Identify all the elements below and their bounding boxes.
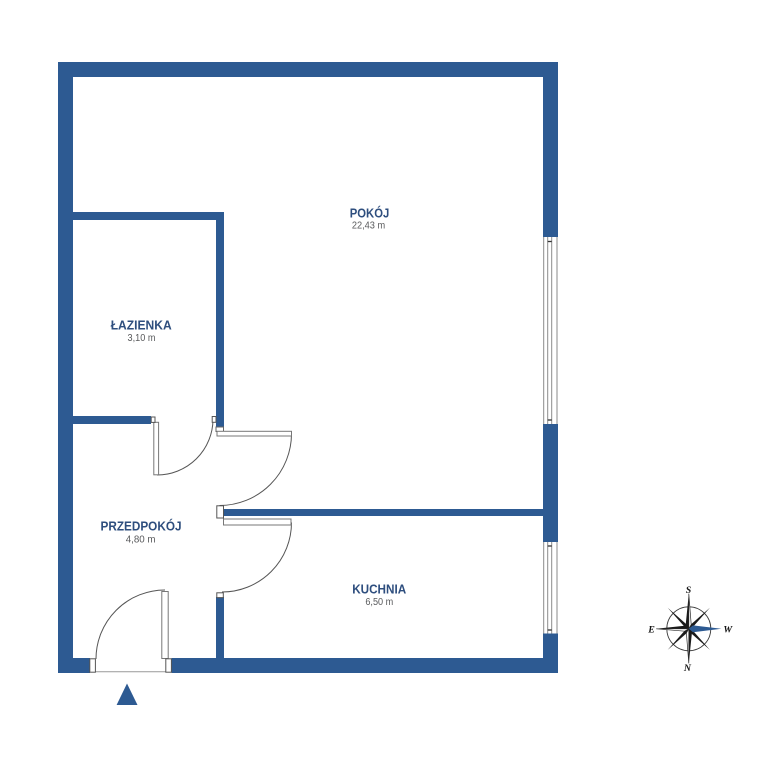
svg-text:N: N [683,663,692,674]
svg-text:POKÓJ: POKÓJ [350,206,390,221]
svg-text:3,10 m: 3,10 m [128,333,156,344]
svg-text:W: W [723,625,733,636]
svg-text:ŁAZIENKA: ŁAZIENKA [111,317,173,332]
svg-text:6,50 m: 6,50 m [365,597,393,608]
svg-text:22,43 m: 22,43 m [352,220,385,231]
svg-text:PRZEDPOKÓJ: PRZEDPOKÓJ [101,519,182,534]
svg-text:S: S [686,585,692,596]
svg-text:E: E [647,624,655,635]
svg-text:4,80 m: 4,80 m [126,534,156,545]
svg-text:KUCHNIA: KUCHNIA [352,581,407,596]
